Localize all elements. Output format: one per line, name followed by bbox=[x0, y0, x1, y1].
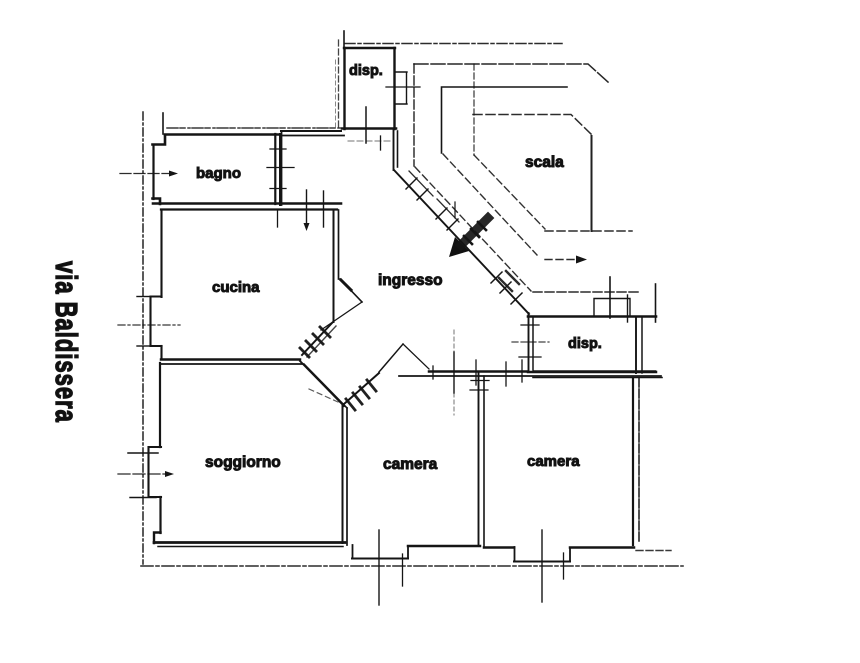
svg-text:camera: camera bbox=[527, 453, 580, 470]
svg-text:bagno: bagno bbox=[196, 165, 241, 182]
svg-text:disp.: disp. bbox=[349, 63, 383, 79]
svg-text:via Baldissera: via Baldissera bbox=[49, 261, 84, 423]
svg-text:scala: scala bbox=[525, 154, 564, 171]
svg-text:cucina: cucina bbox=[212, 279, 260, 296]
svg-text:ingresso: ingresso bbox=[378, 272, 443, 289]
svg-text:disp.: disp. bbox=[568, 336, 602, 352]
svg-text:soggiorno: soggiorno bbox=[205, 454, 281, 471]
svg-text:camera: camera bbox=[383, 456, 438, 473]
